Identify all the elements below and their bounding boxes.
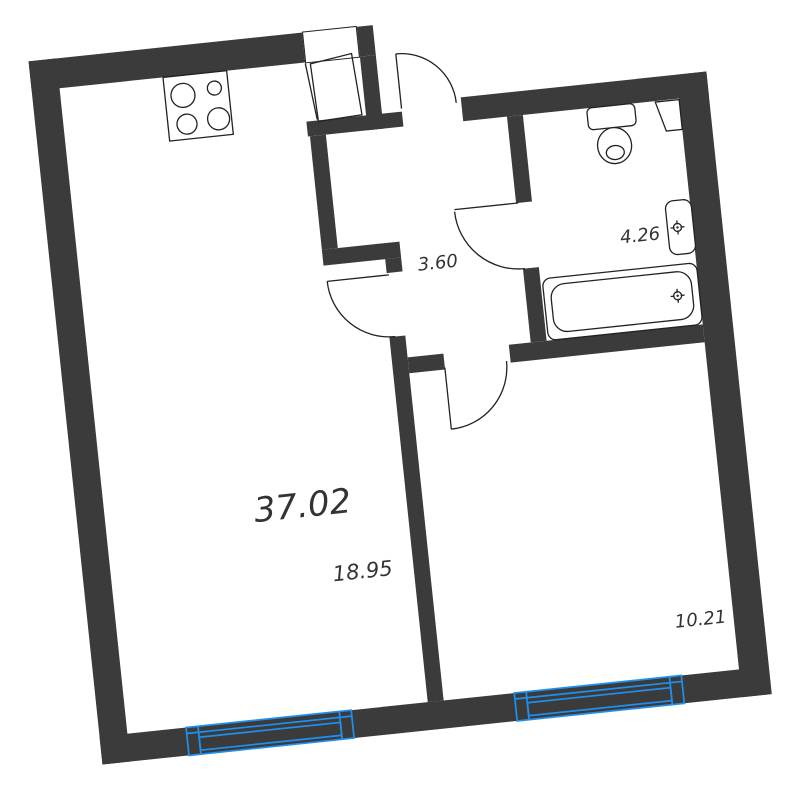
floorplan-canvas: 37.02 18.95 3.60 4.26 10.21 xyxy=(0,0,800,796)
toilet-icon xyxy=(587,103,641,166)
door-swing-icon-bedroom xyxy=(445,361,513,429)
door-swing-icon-living xyxy=(327,275,395,343)
entrance-door-leaf-icon xyxy=(305,53,362,122)
fixtures-layer xyxy=(0,0,800,796)
stove-icon xyxy=(163,71,233,141)
floorplan-page: { "floorplan": { "type": "apartment-floo… xyxy=(0,0,800,791)
window-icon-bedroom xyxy=(514,675,684,720)
corner-shelf-icon xyxy=(655,100,682,132)
window-icon-living xyxy=(186,710,354,755)
door-swing-icon-entry xyxy=(396,48,456,108)
bathtub-icon xyxy=(542,263,703,341)
